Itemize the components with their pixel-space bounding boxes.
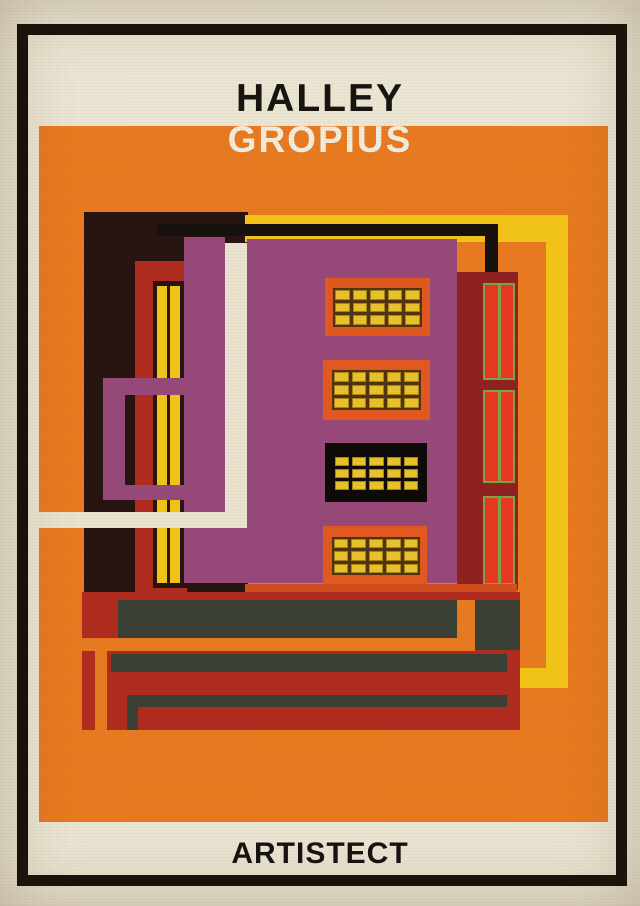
poster-root: HALLEY GROPIUS (0, 0, 640, 906)
poster-frame-border (17, 24, 627, 886)
